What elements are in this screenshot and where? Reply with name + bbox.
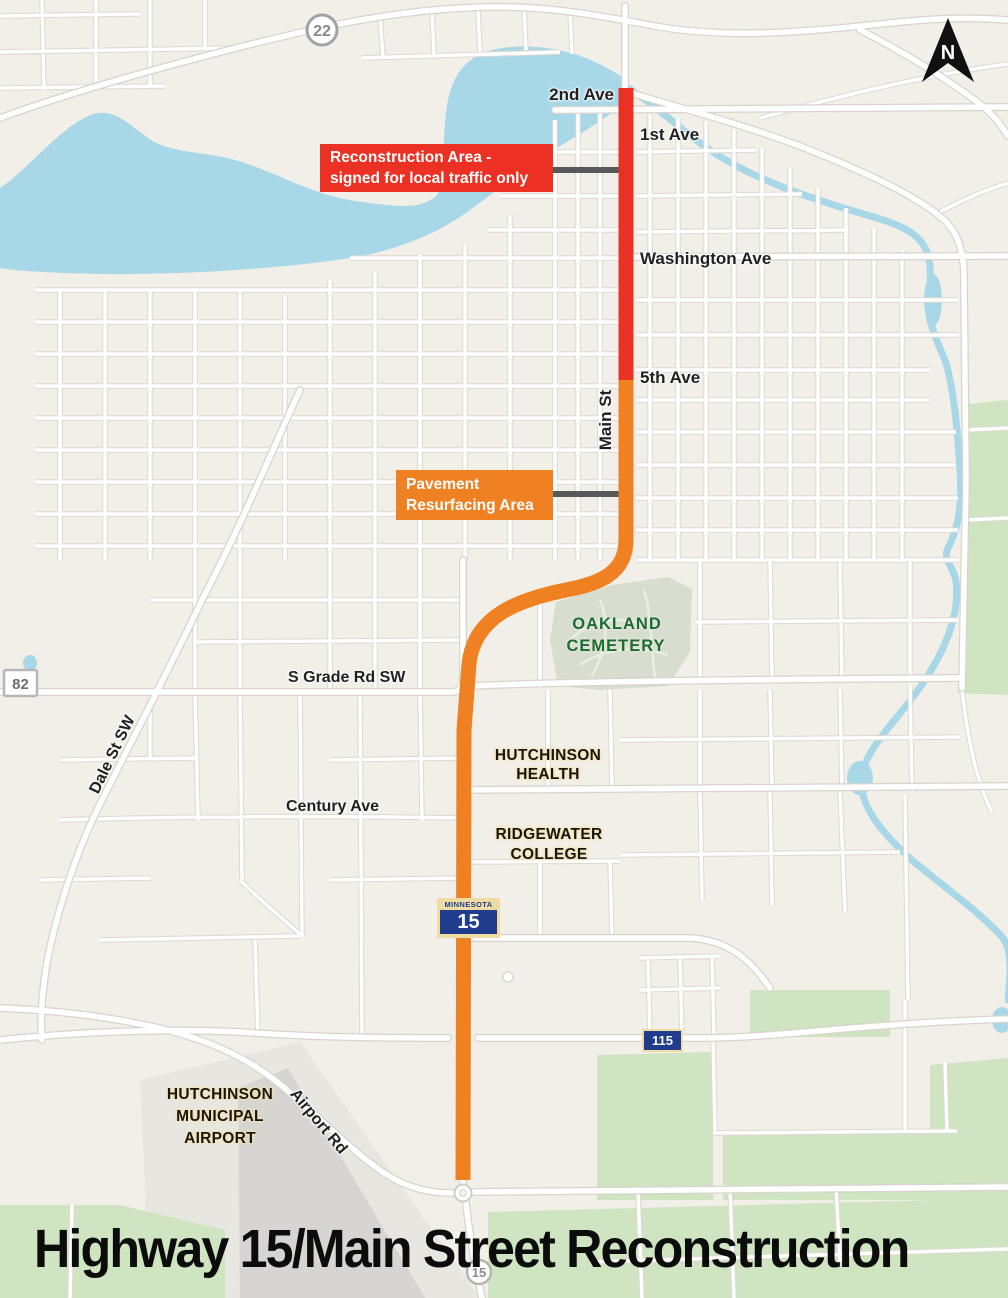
reconstruction-callout-line2: signed for local traffic only <box>330 168 543 189</box>
mn15-shield-state-label: MINNESOTA <box>440 899 497 910</box>
airport-label-line2: MUNICIPAL <box>176 1108 264 1126</box>
hwy82-shield: 82 <box>4 670 37 696</box>
street-label-s-grade-rd: S Grade Rd SW <box>288 669 405 687</box>
resurfacing-callout: Pavement Resurfacing Area <box>396 470 553 520</box>
mn15-route-shield: MINNESOTA 15 <box>437 898 500 938</box>
street-label-washington-ave: Washington Ave <box>640 249 771 269</box>
street-label-century-ave: Century Ave <box>286 798 379 816</box>
street-label-main-st: Main St <box>596 390 616 450</box>
airport-label-line1: HUTCHINSON <box>167 1086 273 1104</box>
hwy115-shield: 115 <box>642 1029 683 1052</box>
roundabout <box>455 1185 472 1202</box>
airport-label-line3: AIRPORT <box>184 1130 256 1148</box>
cemetery-label-line1: OAKLAND <box>572 615 662 634</box>
health-label-line2: HEALTH <box>516 766 580 784</box>
hwy22-shield: 22 <box>307 15 337 45</box>
mn15-shield-number: 15 <box>440 910 497 934</box>
reconstruction-callout-line1: Reconstruction Area - <box>330 147 543 168</box>
college-label-line2: COLLEGE <box>510 846 587 864</box>
resurfacing-callout-line1: Pavement <box>406 474 543 495</box>
svg-text:22: 22 <box>313 23 331 40</box>
hutchinson-project-map: 15 22 82 N Reconstruction Area - signed … <box>0 0 1008 1298</box>
reconstruction-callout: Reconstruction Area - signed for local t… <box>320 144 553 192</box>
street-label-5th-ave: 5th Ave <box>640 368 700 388</box>
health-label-line1: HUTCHINSON <box>495 747 601 765</box>
svg-text:N: N <box>941 42 955 64</box>
resurfacing-callout-line2: Resurfacing Area <box>406 495 543 516</box>
street-label-2nd-ave: 2nd Ave <box>538 85 614 105</box>
map-title: Highway 15/Main Street Reconstruction <box>34 1218 908 1280</box>
street-label-1st-ave: 1st Ave <box>640 125 699 145</box>
college-label-line1: RIDGEWATER <box>496 826 603 844</box>
svg-text:82: 82 <box>12 676 29 693</box>
map-canvas: 15 22 82 N <box>0 0 1008 1298</box>
cemetery-label-line2: CEMETERY <box>566 637 665 656</box>
